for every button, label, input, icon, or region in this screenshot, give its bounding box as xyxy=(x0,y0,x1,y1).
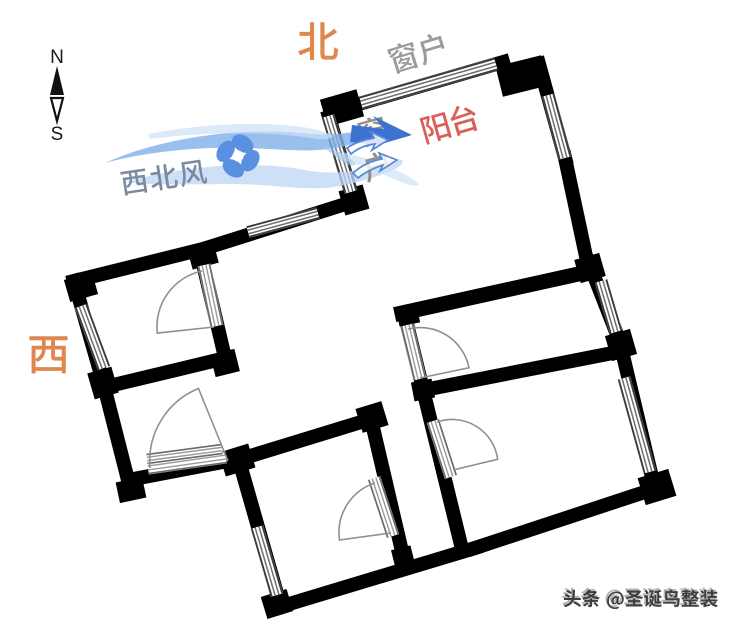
svg-text:N: N xyxy=(50,47,64,68)
svg-text:S: S xyxy=(51,124,64,145)
